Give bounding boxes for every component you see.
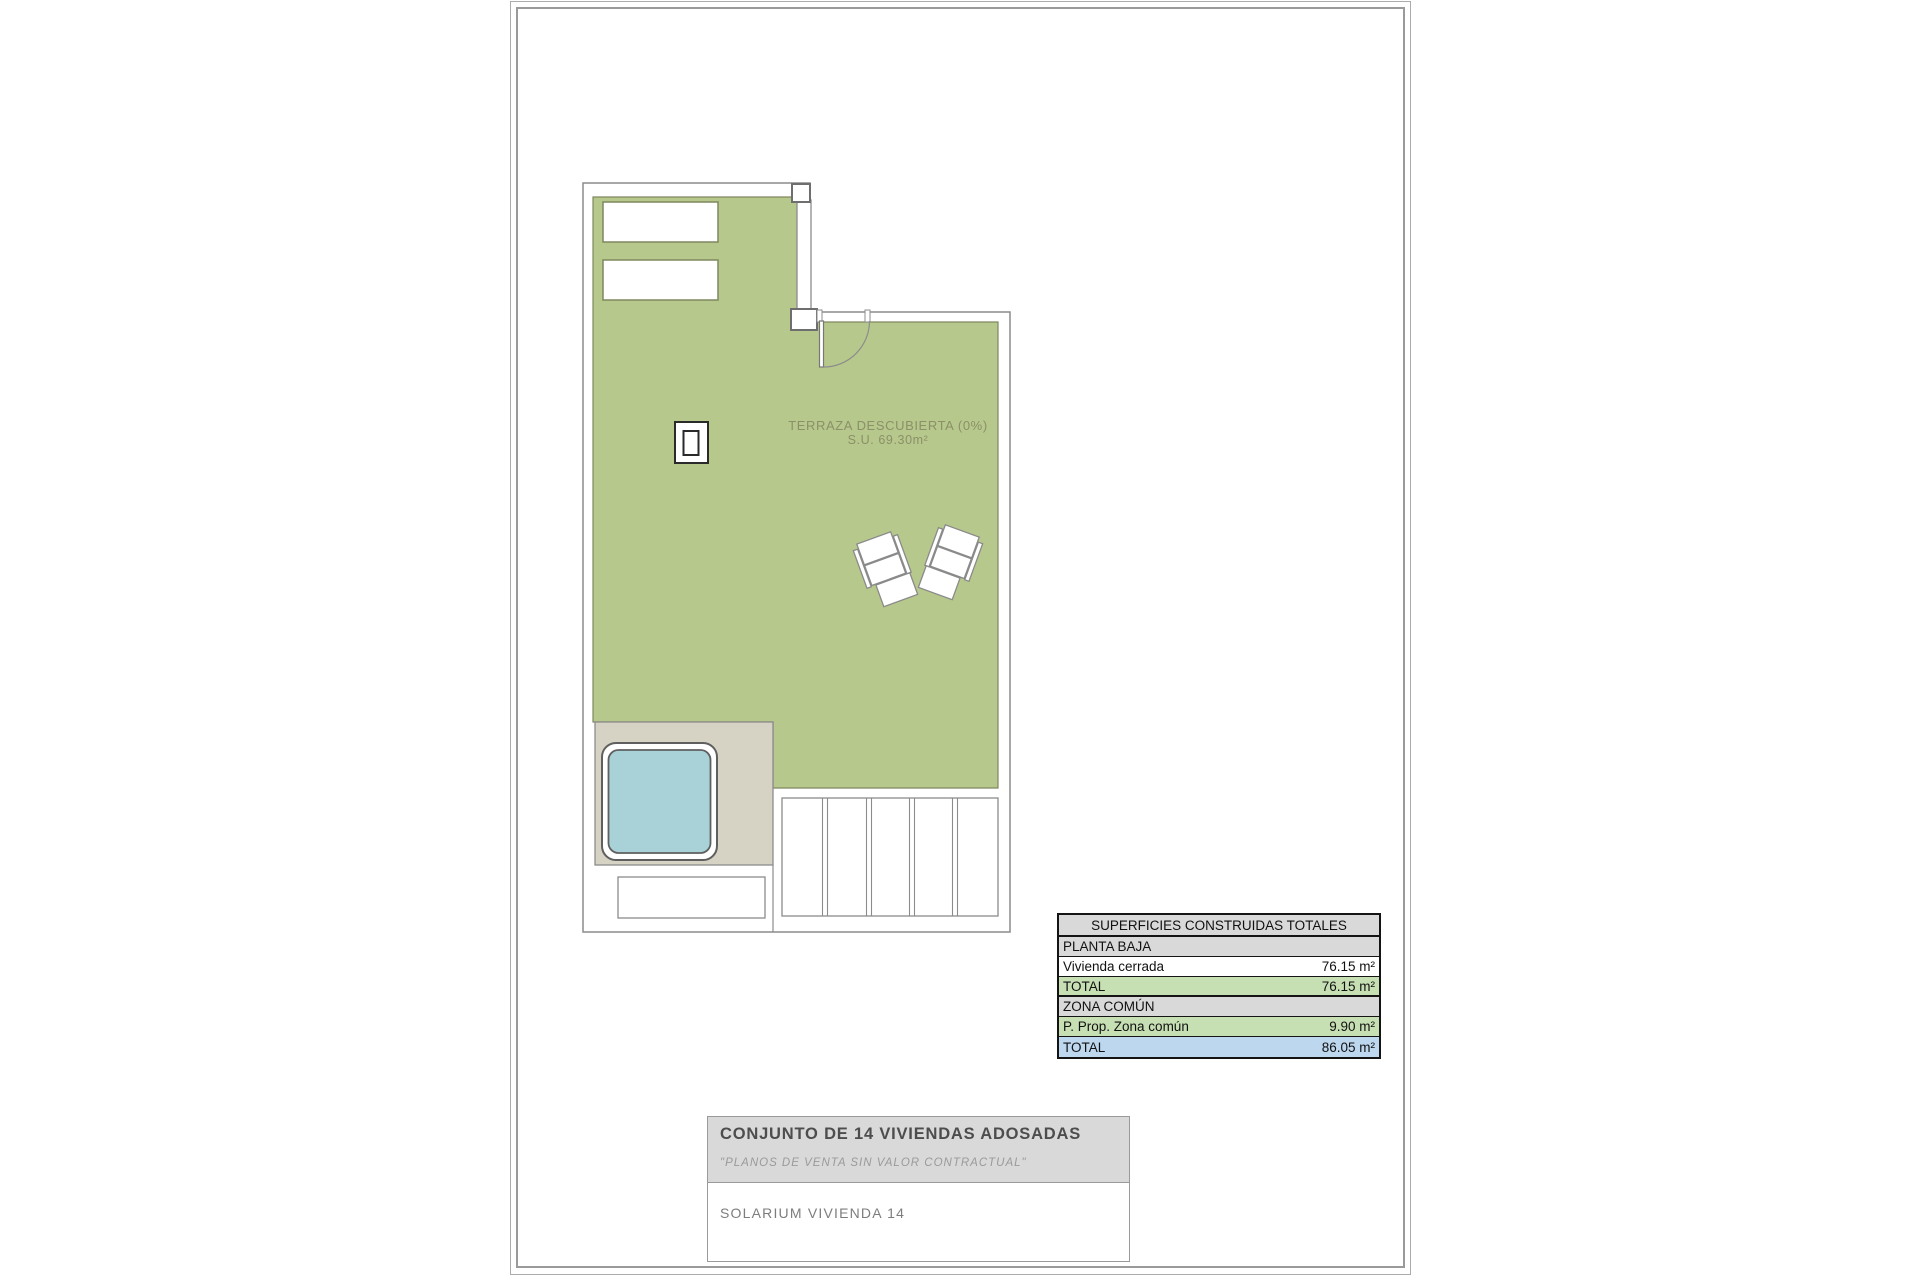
floor-plan: TERRAZA DESCUBIERTA (0%) S.U. 69.30m²: [0, 0, 1920, 1280]
door-leaf: [820, 321, 824, 367]
door-jamb: [817, 310, 822, 322]
table-row: ZONA COMÚN: [1059, 997, 1379, 1017]
title-block-body: SOLARIUM VIVIENDA 14: [708, 1183, 1129, 1221]
areas-table-title: SUPERFICIES CONSTRUIDAS TOTALES: [1059, 915, 1379, 937]
row-label: ZONA COMÚN: [1063, 999, 1375, 1014]
partition-wall: [797, 200, 811, 312]
terrace-label-line2: S.U. 69.30m²: [848, 433, 929, 447]
row-value: 86.05 m²: [1322, 1040, 1375, 1055]
terrace-label-line1: TERRAZA DESCUBIERTA (0%): [788, 418, 988, 433]
row-value: 9.90 m²: [1329, 1019, 1375, 1034]
row-value: 76.15 m²: [1322, 959, 1375, 974]
row-label: PLANTA BAJA: [1063, 939, 1375, 954]
skylight-opening: [603, 260, 718, 300]
stairs: [782, 798, 998, 916]
disclaimer-text: "PLANOS DE VENTA SIN VALOR CONTRACTUAL": [720, 1157, 1129, 1169]
table-row: TOTAL 76.15 m²: [1059, 977, 1379, 997]
row-label: TOTAL: [1063, 979, 1322, 994]
table-row: PLANTA BAJA: [1059, 937, 1379, 957]
project-title: CONJUNTO DE 14 VIVIENDAS ADOSADAS: [720, 1125, 1129, 1144]
row-label: TOTAL: [1063, 1040, 1322, 1055]
wall-post: [792, 184, 810, 202]
row-value: 76.15 m²: [1322, 979, 1375, 994]
areas-table-title-text: SUPERFICIES CONSTRUIDAS TOTALES: [1063, 918, 1375, 933]
pool-water: [609, 750, 711, 853]
door-jamb: [865, 310, 870, 322]
title-block-header: CONJUNTO DE 14 VIVIENDAS ADOSADAS "PLANO…: [708, 1117, 1129, 1183]
row-label: Vivienda cerrada: [1063, 959, 1322, 974]
table-row: TOTAL 86.05 m²: [1059, 1037, 1379, 1057]
planter-step: [618, 877, 765, 918]
row-label: P. Prop. Zona común: [1063, 1019, 1329, 1034]
title-block: CONJUNTO DE 14 VIVIENDAS ADOSADAS "PLANO…: [707, 1116, 1130, 1262]
skylight-opening: [603, 202, 718, 242]
areas-table: SUPERFICIES CONSTRUIDAS TOTALES PLANTA B…: [1057, 913, 1381, 1059]
table-row: Vivienda cerrada 76.15 m²: [1059, 957, 1379, 977]
vent-shaft: [675, 422, 708, 463]
wall-post: [791, 309, 817, 330]
table-row: P. Prop. Zona común 9.90 m²: [1059, 1017, 1379, 1037]
sheet-name: SOLARIUM VIVIENDA 14: [720, 1205, 1129, 1221]
